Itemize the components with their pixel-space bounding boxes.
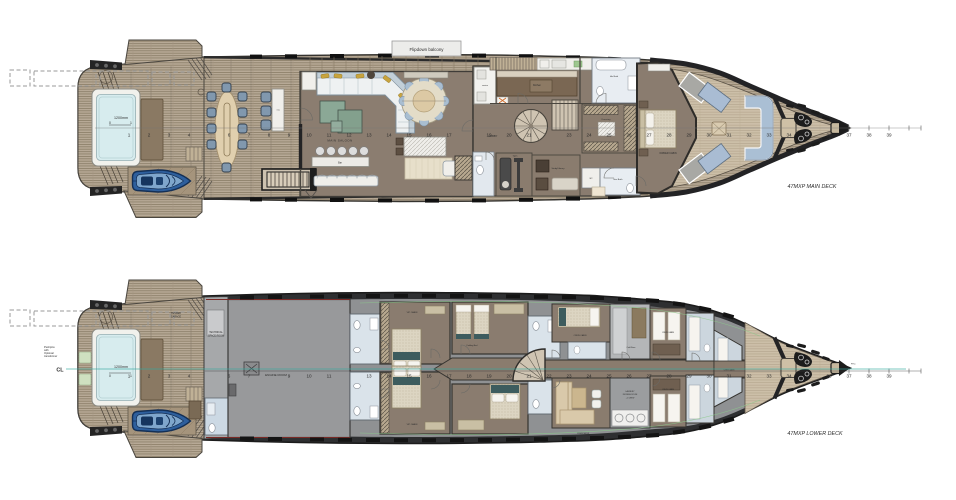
svg-text:OWNER CABIN: OWNER CABIN — [659, 152, 676, 155]
svg-text:4: 4 — [188, 133, 191, 138]
svg-text:3: 3 — [168, 133, 171, 138]
svg-text:36: 36 — [826, 133, 832, 138]
svg-text:13: 13 — [366, 133, 372, 138]
svg-text:12: 12 — [346, 133, 352, 138]
svg-text:CREW MESS: CREW MESS — [577, 433, 590, 435]
svg-text:IRONING ROOM: IRONING ROOM — [623, 394, 638, 396]
svg-text:SPACE ROOM: SPACE ROOM — [208, 335, 224, 338]
svg-text:FPxx: FPxx — [851, 364, 856, 366]
svg-text:47MXP MAIN DECK: 47MXP MAIN DECK — [788, 184, 837, 190]
svg-text:14: 14 — [386, 133, 392, 138]
svg-text:33: 33 — [766, 374, 772, 379]
svg-text:His Bath: His Bath — [610, 75, 619, 78]
svg-text:Study/Library: Study/Library — [552, 167, 566, 170]
svg-text:2: 2 — [148, 374, 151, 379]
svg-text:33: 33 — [766, 133, 772, 138]
svg-text:Her Bath: Her Bath — [614, 178, 623, 181]
svg-text:8: 8 — [268, 133, 271, 138]
svg-text:34: 34 — [786, 374, 792, 379]
svg-text:1200mm: 1200mm — [114, 365, 128, 369]
svg-text:29: 29 — [686, 133, 692, 138]
svg-text:26: 26 — [626, 374, 632, 379]
svg-text:6: 6 — [228, 374, 231, 379]
svg-text:32: 32 — [746, 374, 752, 379]
svg-text:14: 14 — [386, 374, 392, 379]
svg-text:Flipdown balcony: Flipdown balcony — [410, 47, 445, 52]
svg-text:21: 21 — [526, 133, 532, 138]
svg-text:11: 11 — [327, 374, 332, 379]
svg-text:23: 23 — [566, 133, 572, 138]
svg-text:10: 10 — [306, 374, 312, 379]
svg-text:Kitchen: Kitchen — [533, 84, 542, 87]
svg-text:service: service — [482, 84, 488, 87]
svg-text:CL: CL — [56, 368, 64, 374]
svg-text:2: 2 — [148, 133, 151, 138]
svg-text:VIP CABIN: VIP CABIN — [407, 423, 418, 426]
svg-text:23: 23 — [566, 374, 572, 379]
svg-text:transformer: transformer — [44, 354, 57, 358]
svg-text:10: 10 — [306, 133, 312, 138]
svg-text:Folding Bed: Folding Bed — [467, 345, 478, 347]
svg-text:Dressing: Dressing — [602, 118, 611, 121]
svg-text:19: 19 — [486, 374, 492, 379]
svg-text:15: 15 — [406, 133, 412, 138]
svg-text:9: 9 — [288, 374, 291, 379]
svg-text:3: 3 — [168, 374, 171, 379]
svg-text:26: 26 — [626, 133, 632, 138]
svg-text:36: 36 — [826, 374, 832, 379]
svg-text:4: 4 — [188, 374, 191, 379]
svg-text:18: 18 — [466, 374, 472, 379]
svg-text:ENGINE ROOM: ENGINE ROOM — [265, 373, 287, 377]
svg-text:28: 28 — [666, 374, 672, 379]
svg-text:21: 21 — [526, 374, 532, 379]
svg-text:22: 22 — [546, 374, 552, 379]
svg-text:LAUNDRY: LAUNDRY — [625, 390, 635, 393]
svg-text:6: 6 — [228, 133, 231, 138]
svg-text:16: 16 — [426, 374, 432, 379]
svg-text:Bar: Bar — [338, 162, 342, 165]
svg-text:MAIN SALOON: MAIN SALOON — [327, 139, 352, 143]
svg-text:16: 16 — [426, 133, 432, 138]
svg-text:27: 27 — [646, 374, 652, 379]
svg-text:Cold Store: Cold Store — [627, 346, 636, 349]
svg-text:47MXP LOWER DECK: 47MXP LOWER DECK — [787, 431, 843, 437]
svg-text:29: 29 — [686, 374, 692, 379]
svg-text:+1 CREW: +1 CREW — [626, 398, 635, 400]
svg-text:20: 20 — [506, 133, 512, 138]
svg-text:25: 25 — [606, 133, 612, 138]
svg-text:19: 19 — [486, 133, 492, 138]
svg-text:0: 0 — [109, 374, 111, 378]
svg-text:17: 17 — [446, 133, 452, 138]
svg-text:0: 0 — [109, 121, 111, 125]
svg-text:1: 1 — [130, 121, 132, 125]
svg-text:28: 28 — [666, 133, 672, 138]
svg-text:CREW CABIN: CREW CABIN — [574, 334, 587, 337]
svg-text:Gym: Gym — [513, 156, 518, 158]
svg-text:17: 17 — [446, 374, 452, 379]
svg-text:37: 37 — [846, 374, 852, 379]
svg-text:7: 7 — [248, 133, 251, 138]
svg-text:7: 7 — [248, 374, 251, 379]
svg-text:CREW CABIN: CREW CABIN — [662, 331, 675, 334]
svg-text:34: 34 — [786, 133, 792, 138]
svg-text:9: 9 — [288, 133, 291, 138]
svg-text:1: 1 — [128, 133, 131, 138]
svg-text:VIP CABIN: VIP CABIN — [407, 311, 418, 314]
svg-text:25: 25 — [606, 374, 612, 379]
svg-text:20: 20 — [506, 374, 512, 379]
svg-text:24: 24 — [586, 133, 592, 138]
svg-text:11: 11 — [327, 133, 332, 138]
svg-text:39: 39 — [886, 133, 892, 138]
svg-text:31: 31 — [726, 374, 732, 379]
svg-text:15: 15 — [406, 374, 412, 379]
svg-text:30: 30 — [706, 133, 712, 138]
svg-text:24: 24 — [586, 374, 592, 379]
svg-text:13: 13 — [366, 374, 372, 379]
svg-text:1200mm: 1200mm — [114, 116, 128, 120]
svg-text:38: 38 — [866, 374, 872, 379]
svg-text:CREW CABIN: CREW CABIN — [662, 388, 675, 391]
svg-text:37: 37 — [846, 133, 852, 138]
svg-text:32: 32 — [746, 133, 752, 138]
svg-text:31: 31 — [726, 133, 732, 138]
svg-text:30: 30 — [706, 374, 712, 379]
svg-text:GARAGE: GARAGE — [171, 316, 182, 319]
svg-text:39: 39 — [886, 374, 892, 379]
svg-text:1: 1 — [130, 374, 132, 378]
svg-text:27: 27 — [646, 133, 652, 138]
svg-text:38: 38 — [866, 133, 872, 138]
